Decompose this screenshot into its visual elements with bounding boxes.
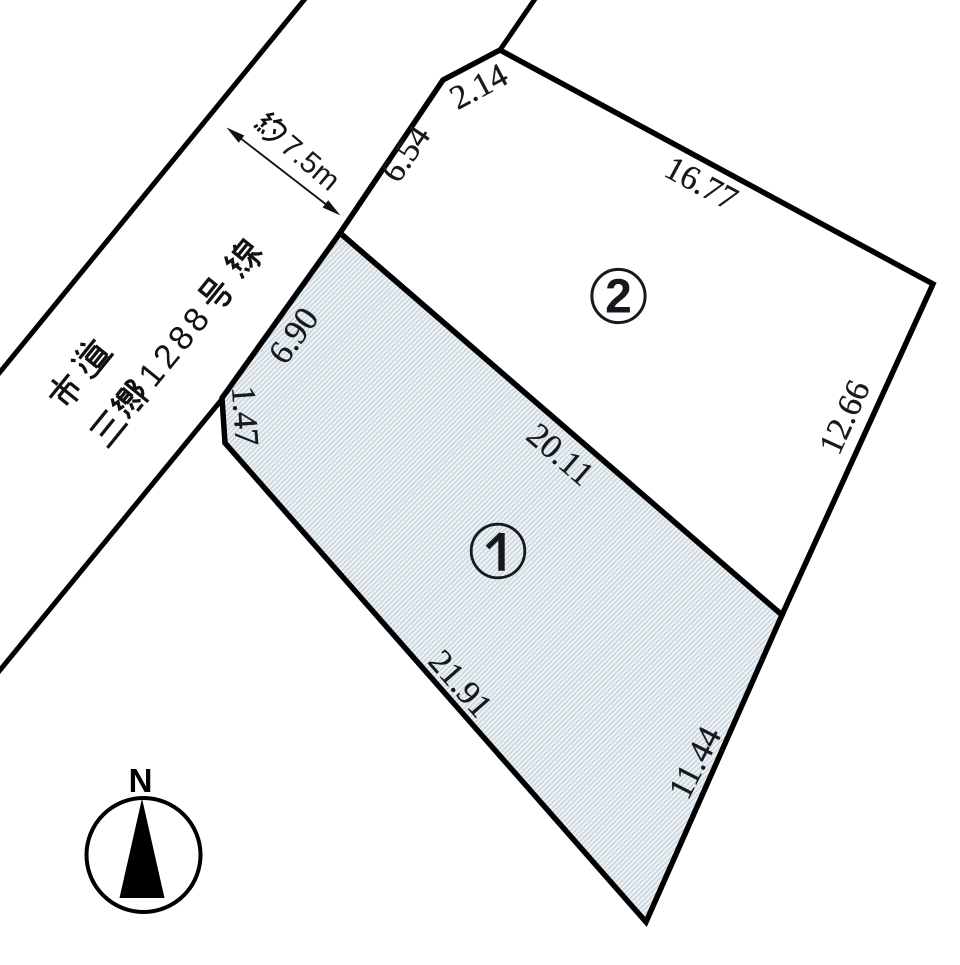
svg-text:N: N xyxy=(129,762,153,799)
svg-text:1.47: 1.47 xyxy=(224,385,265,447)
svg-text:2: 2 xyxy=(605,271,632,324)
